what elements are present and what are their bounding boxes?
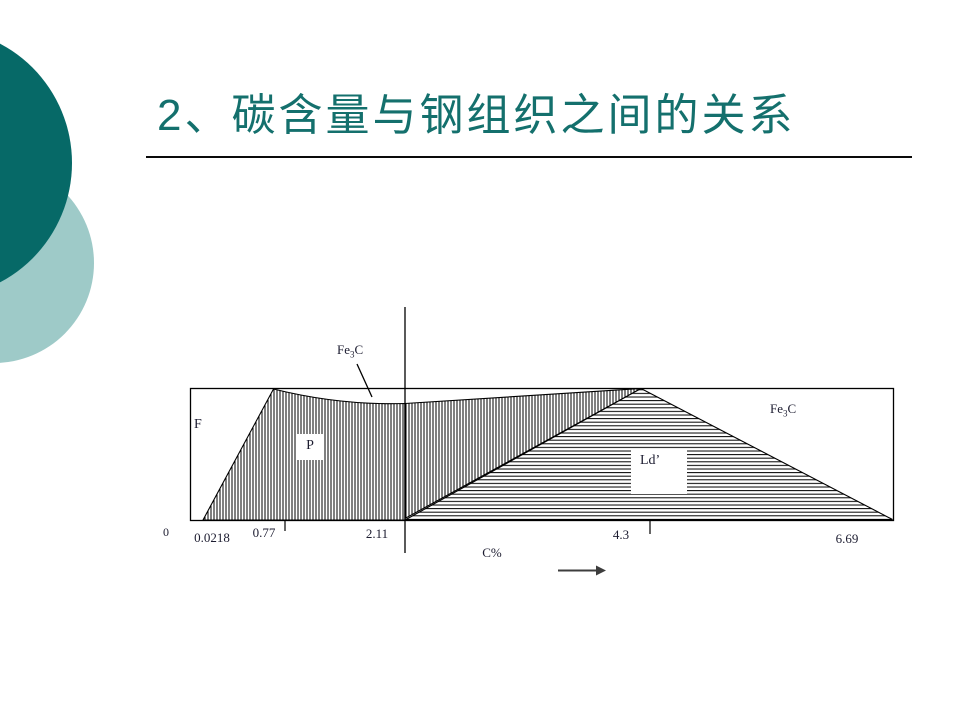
label-cementite-right: Fe3C [770, 402, 796, 416]
axis-tick-label-0-77: 0.77 [253, 526, 276, 540]
axis-tick-label-2-11: 2.11 [366, 527, 388, 541]
label-cementite-top: Fe3C [337, 343, 363, 357]
label-ledeburite: Ld’ [631, 449, 687, 494]
axis-tick-label-0-0218: 0.0218 [194, 531, 230, 545]
axis-title: C% [482, 546, 502, 560]
axis-tick-label-4-3: 4.3 [613, 528, 629, 542]
slide: 2、碳含量与钢组织之间的关系 [0, 0, 960, 720]
label-ferrite: F [194, 418, 202, 432]
phase-fraction-diagram [0, 0, 960, 720]
axis-tick-label-6-69: 6.69 [836, 532, 859, 546]
axis-origin-label: 0 [163, 525, 169, 539]
label-pearlite: P [297, 434, 323, 460]
direction-arrow [558, 566, 606, 576]
